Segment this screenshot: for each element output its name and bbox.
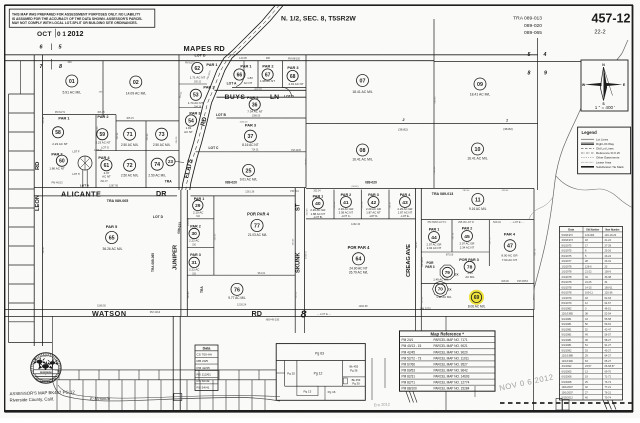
svg-text:330.45: 330.45 [292, 238, 294, 245]
svg-text:310.03: 310.03 [307, 208, 309, 215]
svg-text:316.05: 316.05 [215, 233, 217, 240]
svg-text:253.04: 253.04 [147, 133, 149, 140]
svg-text:282.04: 282.04 [463, 190, 470, 192]
svg-text:PM 69/53: PM 69/53 [422, 257, 424, 267]
svg-text:1013.57: 1013.57 [306, 250, 308, 259]
svg-text:1021.99: 1021.99 [188, 217, 190, 226]
svg-text:328.82: 328.82 [306, 158, 308, 165]
svg-text:207.31: 207.31 [453, 232, 455, 239]
svg-text:653.41: 653.41 [43, 116, 45, 123]
svg-text:204.29: 204.29 [176, 136, 178, 143]
svg-text:304.29: 304.29 [97, 126, 99, 133]
svg-text:1056.00: 1056.00 [240, 121, 249, 123]
svg-text:267.73: 267.73 [490, 237, 492, 244]
svg-text:313.32: 313.32 [422, 296, 424, 303]
svg-text:313.00: 313.00 [188, 291, 190, 298]
svg-text:203.04: 203.04 [334, 201, 336, 208]
svg-text:203.04: 203.04 [362, 201, 364, 208]
svg-text:697.72: 697.72 [534, 248, 536, 255]
svg-text:302.44: 302.44 [117, 132, 119, 139]
svg-text:(36.82): (36.82) [352, 186, 359, 188]
svg-text:660.17: 660.17 [43, 246, 45, 253]
svg-text:328.04: 328.04 [502, 190, 509, 192]
svg-text:222.02: 222.02 [434, 166, 436, 173]
svg-text:664.03: 664.03 [435, 96, 437, 103]
svg-text:201.17: 201.17 [389, 201, 391, 208]
svg-text:104.83: 104.83 [416, 241, 418, 248]
svg-text:313.32: 313.32 [295, 291, 297, 298]
